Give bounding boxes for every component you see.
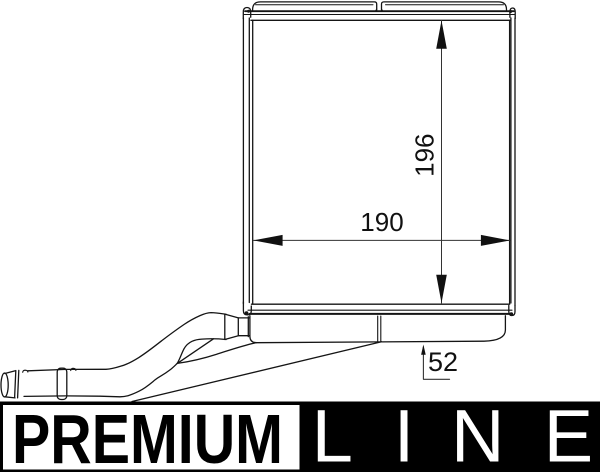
svg-text:E: E (544, 395, 593, 472)
svg-text:52: 52 (428, 347, 458, 377)
svg-text:190: 190 (360, 207, 403, 237)
svg-text:I: I (394, 395, 415, 472)
svg-text:N: N (451, 395, 504, 472)
svg-text:PREMIUM: PREMIUM (12, 400, 283, 472)
svg-text:196: 196 (410, 134, 440, 177)
svg-text:L: L (312, 395, 353, 472)
